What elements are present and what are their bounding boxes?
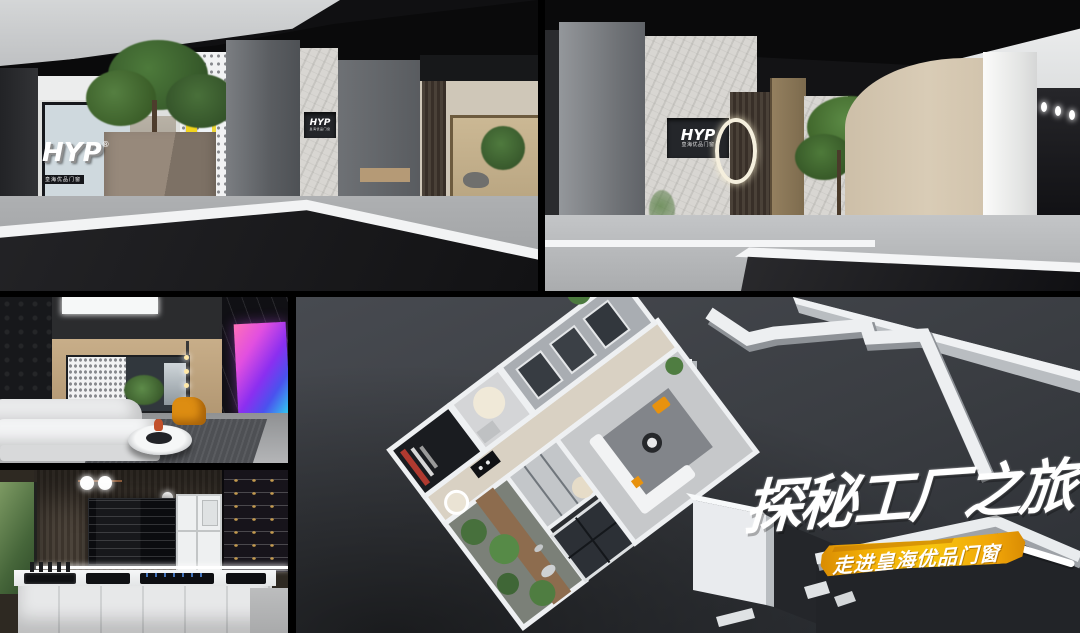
hardware-tray [140, 573, 214, 584]
table-plant [154, 419, 163, 431]
bulb [184, 383, 189, 388]
bulb [184, 369, 189, 374]
counter-body [18, 586, 272, 633]
planter-ledge [360, 168, 410, 182]
hardware-tray [86, 573, 130, 584]
case-rock [463, 172, 489, 188]
floorplan-render [296, 297, 1080, 633]
hardware-tray [24, 573, 76, 584]
hyp-wall-logo: HYP 皇海优品门窗 [304, 112, 336, 138]
spotlight [1041, 102, 1047, 112]
spotlight [1055, 106, 1061, 116]
panel-kitchen-display [0, 470, 288, 633]
ring-light [715, 118, 757, 184]
curb-white [545, 240, 875, 247]
sample-handles [30, 562, 70, 572]
panel-entrance-exterior: HYP® 皇海优品门窗 HYP 皇海优品门窗 [0, 0, 538, 291]
skylight [62, 297, 158, 314]
display-board [88, 498, 176, 566]
pendant-globe [98, 476, 112, 490]
panel-floorplan [296, 297, 1080, 633]
panel-living-room [0, 297, 288, 463]
curved-wall [845, 58, 983, 216]
led-strip [36, 566, 288, 569]
tree-foliage [86, 70, 156, 126]
tv-screen [234, 322, 288, 417]
hyp-logo-subtext: 皇海优品门窗 [42, 175, 84, 184]
tree-trunk [837, 150, 841, 216]
product-card-wall [222, 470, 288, 572]
cabinet-divider [196, 496, 198, 570]
floor-reflection [250, 588, 288, 633]
island-counter [14, 570, 276, 633]
pendant-globe [80, 476, 94, 490]
panel-entrance-interior: HYP 皇海优品门窗 [545, 0, 1080, 291]
hyp-logo-subtext: 皇海优品门窗 [309, 128, 330, 131]
coffee-table [128, 425, 192, 455]
standing-white-wall [686, 493, 774, 607]
hall-ceiling [420, 55, 538, 81]
registered-mark: ® [102, 140, 110, 149]
cabinet-divider [178, 530, 220, 532]
hyp-logo-text: HYP [681, 128, 715, 143]
hyp-logo-text: HYP [42, 138, 102, 168]
hyp-storefront-sign: HYP® 皇海优品门窗 [42, 140, 110, 185]
collage-stage: HYP® 皇海优品门窗 HYP 皇海优品门窗 [0, 0, 1080, 633]
spotlight [1069, 110, 1075, 120]
sample-cabinet [176, 494, 222, 572]
case-tree [481, 126, 525, 170]
cabinet-panel [202, 500, 218, 526]
accent-chair [172, 397, 206, 425]
hyp-logo-subtext: 皇海优品门窗 [681, 143, 714, 148]
bulb [184, 355, 189, 360]
table-tray [146, 432, 172, 444]
hardware-tray [226, 573, 266, 584]
